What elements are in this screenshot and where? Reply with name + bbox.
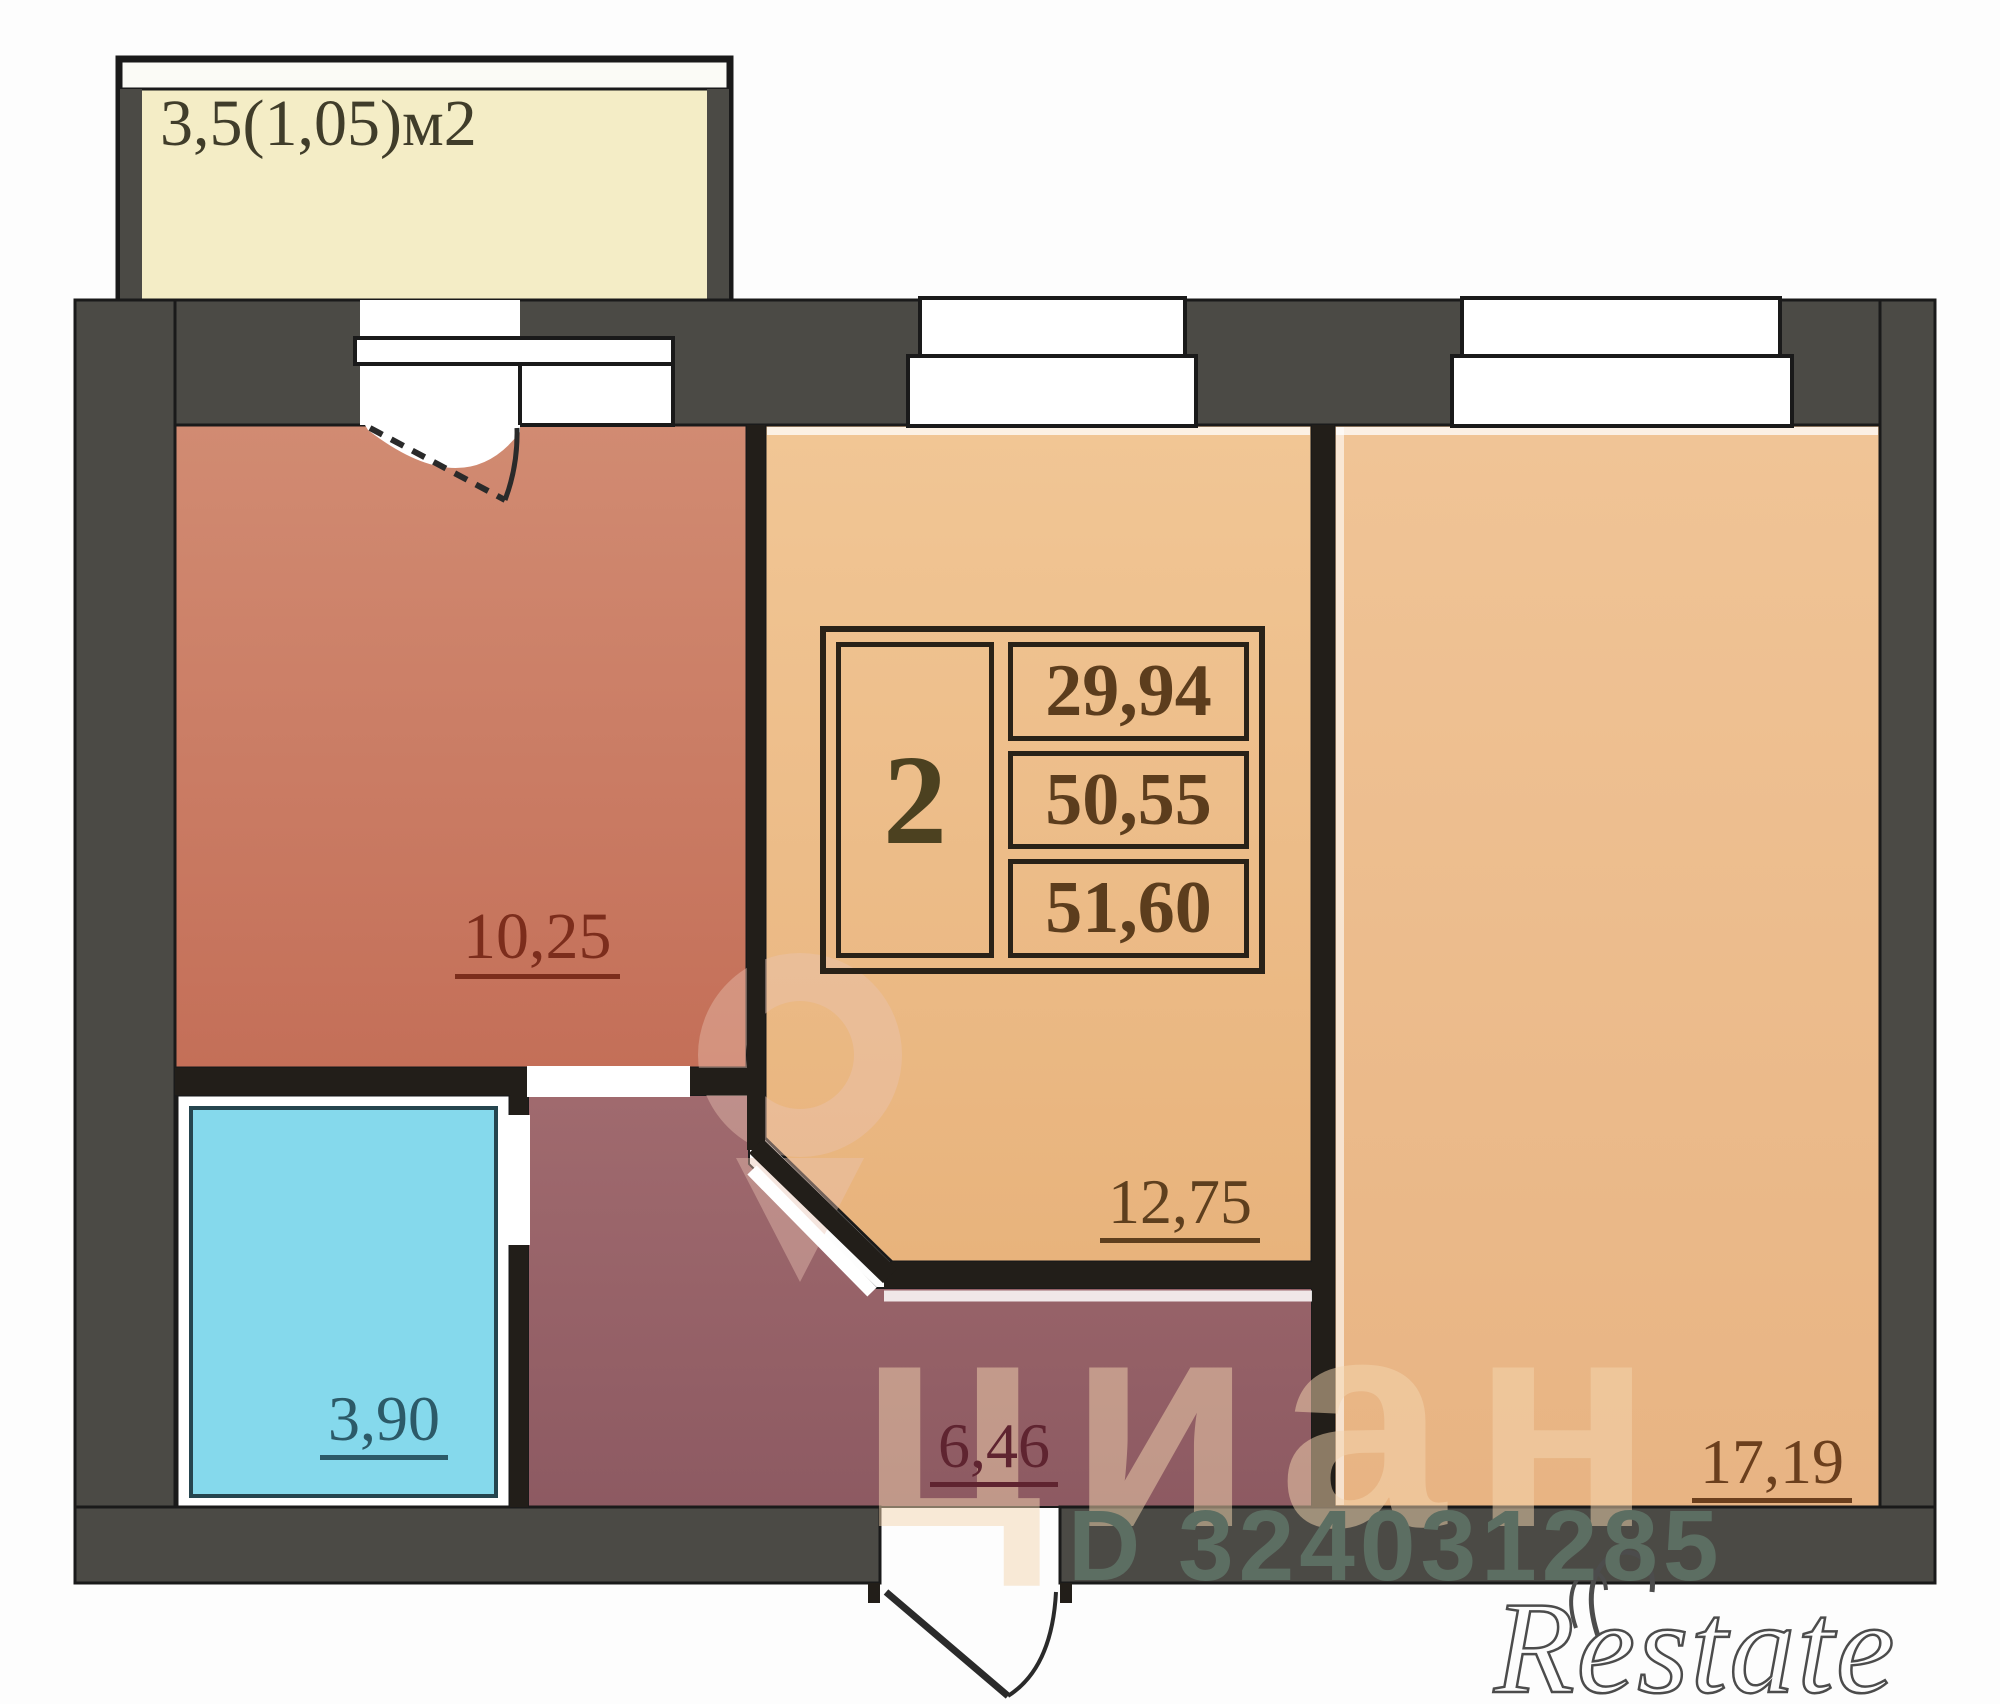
door-opening-bedroom	[527, 1066, 690, 1097]
door-opening-bathroom	[508, 1115, 530, 1245]
balcony-right-wall	[707, 89, 729, 302]
wall-bedroom-bathroom	[175, 1068, 527, 1095]
wall-right	[1880, 300, 1935, 1583]
window-kitchen-outer	[920, 298, 1185, 358]
window-living-inner	[1452, 356, 1792, 426]
wall-bathroom-right-lower	[510, 1245, 528, 1507]
wall-bedroom-hallway	[690, 1068, 765, 1095]
entry-door-leaf	[886, 1592, 1008, 1696]
balcony-window	[520, 364, 673, 425]
info-table-areas-column: 29,94 50,55 51,60	[1008, 642, 1249, 958]
info-table-rooms-count: 2	[836, 642, 994, 958]
window-kitchen-inner	[908, 356, 1196, 426]
floor-plan: Restate 3,5(1,05)м2 10,25 3,90 6,46 12,7…	[0, 0, 2000, 1704]
hallway-area-label: 6,46	[930, 1412, 1058, 1487]
bathroom-area-label: 3,90	[320, 1385, 448, 1460]
entry-door-arc	[1008, 1592, 1056, 1696]
info-table-area: 50,55	[1008, 751, 1249, 850]
wall-left	[75, 300, 175, 1583]
balcony-left-wall	[120, 89, 142, 302]
wall-bedroom-kitchen	[747, 425, 765, 1150]
wall-bathroom-right-upper	[510, 1095, 528, 1115]
kitchen-area-label: 12,75	[1100, 1168, 1260, 1243]
living-wall-highlight	[1336, 427, 1878, 435]
info-table-total-area: 51,60	[1008, 859, 1249, 958]
balcony-door-sill	[355, 338, 673, 364]
balcony-area-label: 3,5(1,05)м2	[160, 86, 477, 162]
info-table-living-area: 29,94	[1008, 642, 1249, 741]
balcony-window-glazing	[121, 61, 728, 89]
wall-bottom-left-segment	[75, 1507, 880, 1583]
listing-id-watermark: D 324031285	[1068, 1496, 1724, 1596]
info-table: 2 29,94 50,55 51,60	[820, 626, 1265, 974]
bedroom-area-label: 10,25	[455, 902, 620, 979]
kitchen-wall-highlight	[767, 427, 1310, 435]
window-living-outer	[1462, 298, 1780, 358]
